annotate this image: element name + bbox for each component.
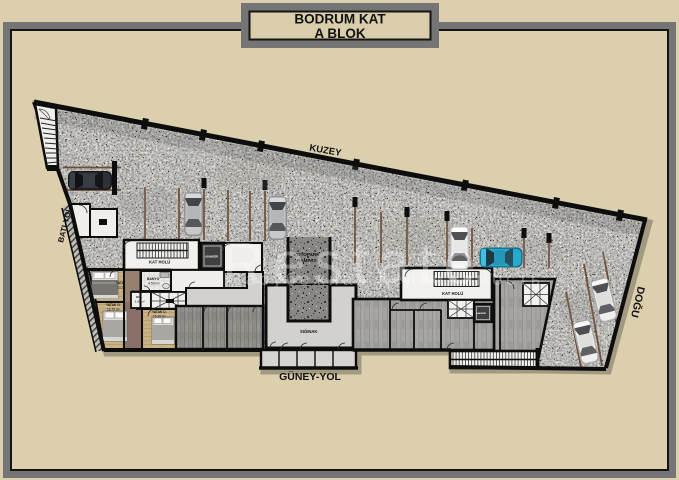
svg-text:ASANSÖR: ASANSÖR xyxy=(476,312,487,315)
svg-text:BANYO: BANYO xyxy=(147,277,160,281)
svg-text:15.25 m²: 15.25 m² xyxy=(153,315,166,319)
svg-text:4.50 m²: 4.50 m² xyxy=(148,282,160,286)
svg-text:A BLOK: A BLOK xyxy=(314,26,365,41)
svg-text:YATAK O.: YATAK O. xyxy=(152,310,167,314)
svg-text:KAT HOLÜ: KAT HOLÜ xyxy=(149,260,170,265)
svg-text:HOL: HOL xyxy=(136,295,143,299)
svg-text:BODRUM KAT: BODRUM KAT xyxy=(294,12,386,27)
svg-text:Зарубежная недвижимость: Зарубежная недвижимость xyxy=(231,269,544,289)
svg-text:SIĞINAK: SIĞINAK xyxy=(300,329,317,334)
svg-text:GÜNEY-YOL: GÜNEY-YOL xyxy=(279,370,341,383)
svg-text:16.75 m²: 16.75 m² xyxy=(107,308,120,312)
svg-text:YATAK O.: YATAK O. xyxy=(106,303,121,307)
